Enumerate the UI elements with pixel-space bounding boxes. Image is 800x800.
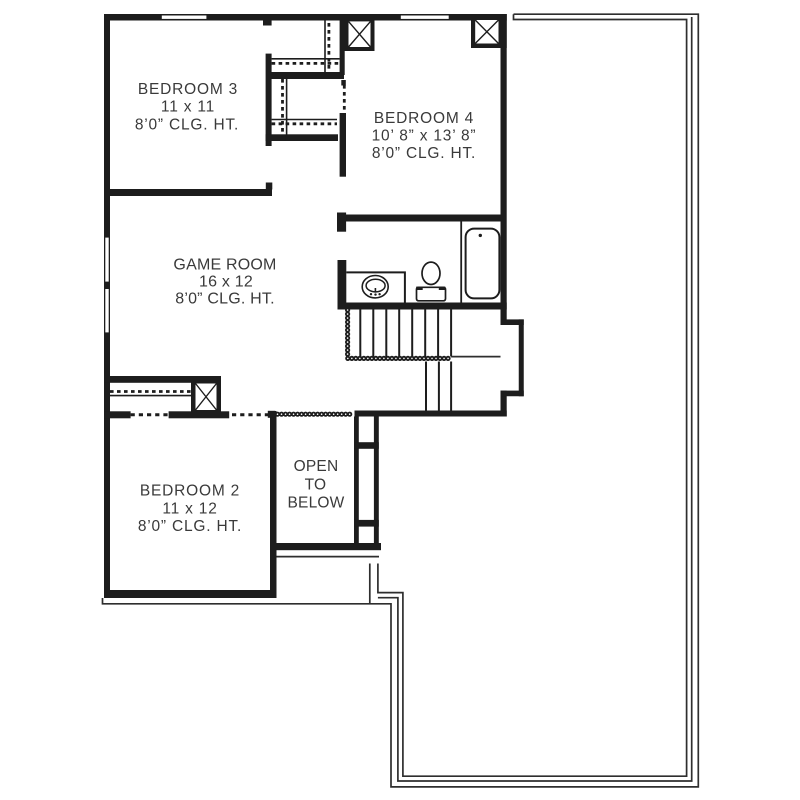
svg-text:8’0” CLG. HT.: 8’0” CLG. HT. [372,145,476,162]
svg-text:16 x 12: 16 x 12 [199,274,253,291]
svg-text:OPEN: OPEN [294,458,339,475]
svg-text:8’0” CLG. HT.: 8’0” CLG. HT. [138,518,242,535]
svg-text:8’0” CLG. HT.: 8’0” CLG. HT. [175,291,275,308]
svg-text:GAME ROOM: GAME ROOM [173,257,276,274]
svg-text:8’0” CLG. HT.: 8’0” CLG. HT. [135,117,239,134]
svg-text:TO: TO [305,477,327,494]
svg-text:BEDROOM 3: BEDROOM 3 [138,81,238,98]
svg-text:11 x 11: 11 x 11 [161,99,215,116]
svg-text:10’ 8” x 13’ 8”: 10’ 8” x 13’ 8” [372,127,477,144]
svg-text:BELOW: BELOW [288,494,345,511]
svg-text:BEDROOM 4: BEDROOM 4 [374,110,474,127]
svg-text:BEDROOM 2: BEDROOM 2 [140,483,240,500]
svg-text:11 x 12: 11 x 12 [162,501,217,518]
